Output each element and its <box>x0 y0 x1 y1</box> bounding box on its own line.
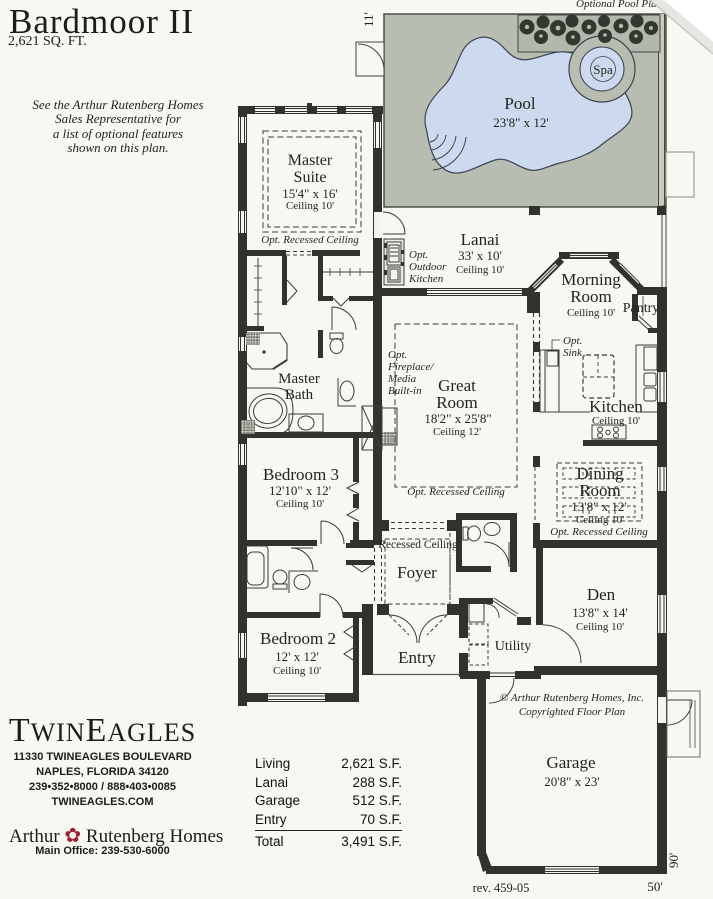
svg-text:Opt. Recessed Ceiling: Opt. Recessed Ceiling <box>261 234 359 246</box>
svg-text:Foyer: Foyer <box>397 563 437 582</box>
svg-text:Recessed Ceiling: Recessed Ceiling <box>378 539 458 551</box>
svg-text:Fireplace/: Fireplace/ <box>387 361 434 373</box>
svg-text:Built-in: Built-in <box>388 385 422 397</box>
svg-text:Room: Room <box>570 287 612 306</box>
svg-text:Master: Master <box>278 371 320 387</box>
svg-text:Outdoor: Outdoor <box>409 261 447 273</box>
svg-text:12'10" x 12': 12'10" x 12' <box>269 483 331 498</box>
svg-text:Bedroom 2: Bedroom 2 <box>260 629 336 648</box>
svg-text:13'8" x 12': 13'8" x 12' <box>571 499 627 514</box>
svg-text:Pool: Pool <box>504 94 535 113</box>
svg-text:Ceiling 10': Ceiling 10' <box>576 514 624 526</box>
svg-text:Opt.: Opt. <box>409 249 428 261</box>
svg-text:Ceiling 10': Ceiling 10' <box>286 200 334 212</box>
svg-text:Suite: Suite <box>294 169 327 186</box>
svg-text:Opt. Recessed Ceiling: Opt. Recessed Ceiling <box>550 526 648 538</box>
svg-text:11': 11' <box>361 12 376 27</box>
svg-text:Kitchen: Kitchen <box>408 273 444 285</box>
svg-text:13'8" x 14': 13'8" x 14' <box>572 605 628 620</box>
svg-text:Entry: Entry <box>398 648 436 667</box>
svg-text:Kitchen: Kitchen <box>589 397 643 416</box>
svg-text:Ceiling 10': Ceiling 10' <box>567 307 615 319</box>
svg-text:Lanai: Lanai <box>461 230 500 249</box>
svg-text:Ceiling 10': Ceiling 10' <box>273 665 321 677</box>
svg-text:Utility: Utility <box>495 639 532 654</box>
svg-text:Room: Room <box>579 481 621 500</box>
svg-text:12' x 12': 12' x 12' <box>275 649 319 664</box>
svg-text:Ceiling 10': Ceiling 10' <box>276 498 324 510</box>
svg-text:50': 50' <box>647 879 662 894</box>
svg-text:Copyrighted Floor Plan: Copyrighted Floor Plan <box>519 706 626 718</box>
svg-text:Bedroom 3: Bedroom 3 <box>263 465 339 484</box>
svg-text:Opt. Recessed Ceiling: Opt. Recessed Ceiling <box>407 486 505 498</box>
svg-text:Master: Master <box>288 152 333 169</box>
svg-text:18'2" x 25'8": 18'2" x 25'8" <box>424 411 491 426</box>
svg-text:Bath: Bath <box>285 387 314 403</box>
svg-text:Ceiling 10': Ceiling 10' <box>456 264 504 276</box>
svg-text:Sink: Sink <box>563 347 583 359</box>
svg-text:Ceiling 12': Ceiling 12' <box>433 426 481 438</box>
svg-text:Spa: Spa <box>593 62 613 77</box>
svg-text:Garage: Garage <box>546 753 595 772</box>
svg-text:Pantry: Pantry <box>623 301 660 316</box>
svg-text:20'8" x 23': 20'8" x 23' <box>544 774 600 789</box>
svg-text:15'4" x 16': 15'4" x 16' <box>282 186 338 201</box>
svg-text:23'8" x 12': 23'8" x 12' <box>493 115 549 130</box>
svg-text:rev. 459-05: rev. 459-05 <box>473 881 530 895</box>
svg-text:Den: Den <box>587 585 616 604</box>
svg-text:Ceiling 10': Ceiling 10' <box>576 621 624 633</box>
svg-text:90': 90' <box>666 853 681 868</box>
svg-text:33' x 10': 33' x 10' <box>458 248 502 263</box>
svg-text:Opt.: Opt. <box>388 349 407 361</box>
svg-text:© Arthur Rutenberg Homes, Inc.: © Arthur Rutenberg Homes, Inc. <box>500 692 644 704</box>
svg-text:Opt.: Opt. <box>563 335 582 347</box>
svg-text:Media: Media <box>387 373 417 385</box>
svg-text:Optional Pool Pla: Optional Pool Pla <box>576 0 657 10</box>
svg-text:Room: Room <box>436 393 478 412</box>
